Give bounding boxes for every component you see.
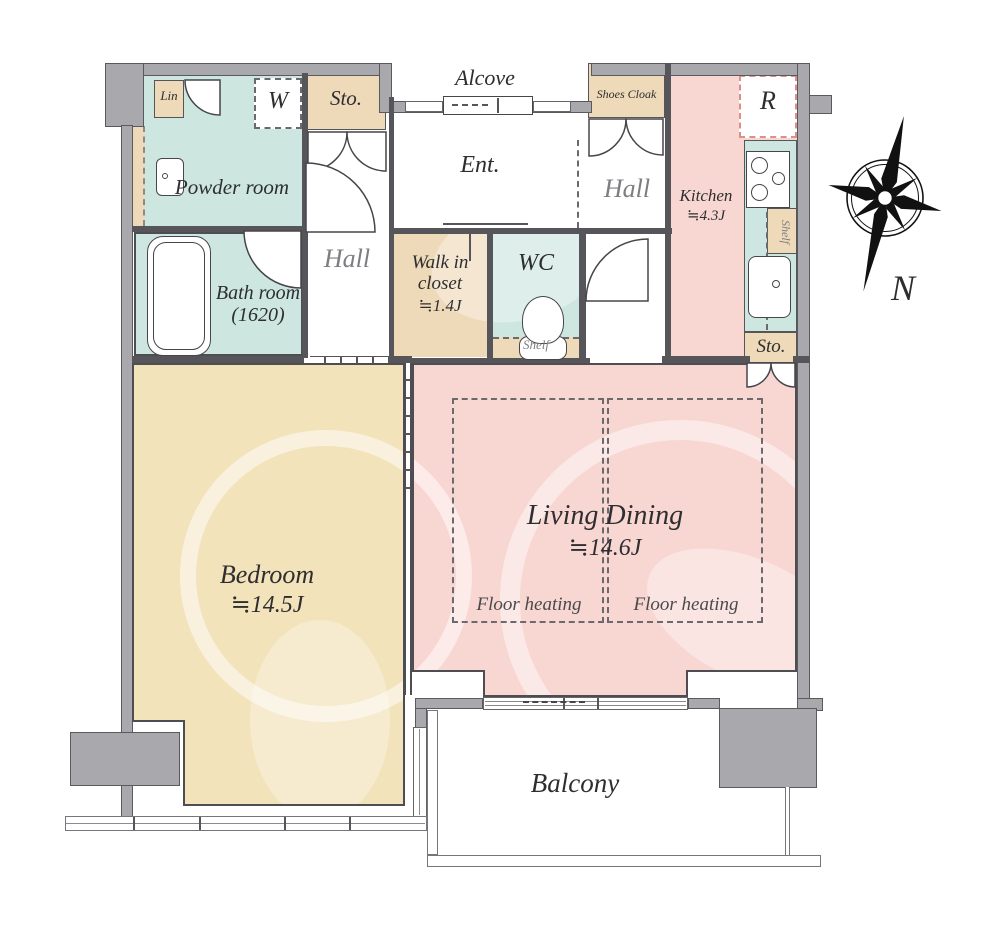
shoes-cloak-door-arc [626,119,663,155]
wic-name: Walk in closet [412,252,469,294]
wc-shelf-label: Shelf [508,338,564,353]
bath-room-label: Bath room (1620) [212,282,304,327]
kitchen-name: Kitchen [680,186,733,205]
living-name: Living Dining [527,500,683,531]
walk-in-closet-label: Walk in closet ≒1.4J [394,252,486,316]
compass-north-label: N [878,268,928,308]
kitchen-size: ≒4.3J [687,208,725,224]
storage-right-door-arc [771,363,795,387]
powder-room-label: Powder room [172,176,292,200]
balcony-label: Balcony [440,768,710,798]
refrigerator-label: R [752,86,784,115]
shoes-cloak-label: Shoes Cloak [589,88,664,101]
storage-right-door-arc [747,363,771,387]
wic-size: ≒1.4J [418,296,461,315]
living-dining-label: Living Dining ≒14.6J [468,500,742,563]
bedroom-name: Bedroom [220,560,314,589]
powder-room-door-arc [306,163,375,232]
storage-top-label: Sto. [314,87,378,111]
living-size: ≒14.6J [569,535,642,561]
kitchen-shelf-label: Shelf [772,211,792,253]
hall-center-label: Hall [314,244,380,273]
bath-room-door-arc [244,231,301,288]
floor-heating-right-label: Floor heating [612,594,760,615]
floor-heating-left-label: Floor heating [455,594,603,615]
bath-name: Bath room [216,282,300,304]
hall-right-label: Hall [593,174,661,203]
floor-plan: N Alcove Ent. Shoes Cloak Hall Hall Kitc… [0,0,1000,929]
storage-right-label: Sto. [748,336,794,357]
washer-label: W [262,88,294,115]
storage-top-door-arc [347,132,386,171]
kitchen-label: Kitchen ≒4.3J [666,186,746,225]
linen-label: Lin [155,89,183,104]
bath-size: (1620) [231,304,284,326]
shoes-cloak-door-arc [589,119,626,156]
bedroom-size: ≒14.5J [231,592,304,618]
ent-label: Ent. [430,152,530,179]
alcove-label: Alcove [420,66,550,91]
wc-label: WC [504,250,568,277]
bedroom-label: Bedroom ≒14.5J [162,560,372,619]
linen-door-arc [185,80,220,115]
wc-door-arc [586,239,648,301]
